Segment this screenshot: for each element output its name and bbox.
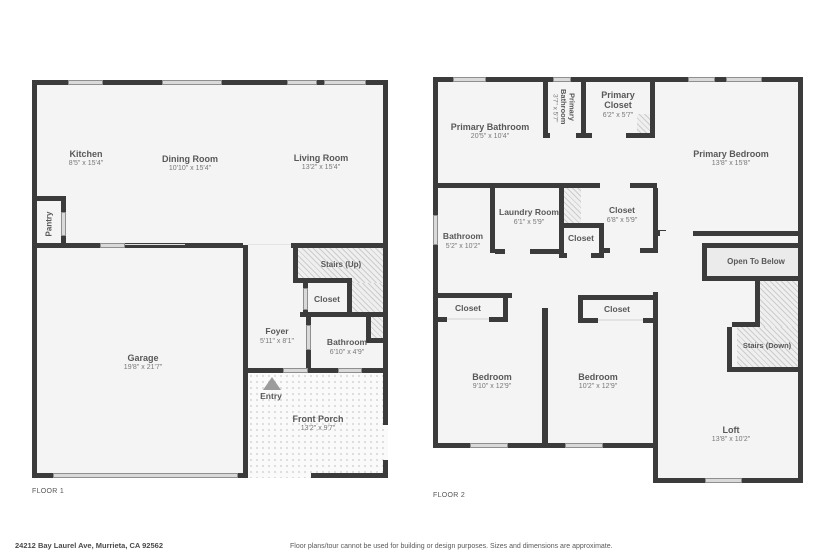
window-marker xyxy=(688,77,715,82)
wall xyxy=(300,312,388,317)
window-marker xyxy=(470,443,508,448)
wall xyxy=(383,80,388,373)
room-label-closet-bed1: Closet xyxy=(455,304,481,314)
door-threshold-line xyxy=(248,244,291,245)
room-label-dining-room: Dining Room 10'10" x 15'4" xyxy=(162,154,218,173)
window-marker xyxy=(306,325,311,350)
window-marker xyxy=(287,80,317,85)
window-marker xyxy=(68,80,103,85)
door-threshold-line xyxy=(125,244,185,245)
wall xyxy=(32,80,37,478)
wall xyxy=(248,368,388,373)
wall xyxy=(383,373,388,425)
stairs-down-area-upper xyxy=(760,281,798,327)
wall xyxy=(653,188,658,252)
room-label-bathroom-f2: Bathroom 5'2" x 10'2" xyxy=(443,232,483,251)
wall xyxy=(727,327,732,372)
room-label-open-to-below: Open To Below xyxy=(727,257,785,266)
window-marker xyxy=(283,368,308,373)
window-marker xyxy=(61,212,66,236)
wall xyxy=(291,243,388,248)
door-opening xyxy=(567,253,591,258)
disclaimer-text: Floor plans/tour cannot be used for buil… xyxy=(290,543,613,550)
wall xyxy=(293,278,352,283)
room-label-stairs-up: Stairs (Up) xyxy=(321,260,361,269)
wall xyxy=(559,223,604,228)
wall xyxy=(433,293,512,298)
room-label-stairs-down: Stairs (Down) xyxy=(743,342,791,351)
wall xyxy=(542,308,548,448)
wall xyxy=(578,318,598,323)
wall xyxy=(732,322,760,327)
window-marker xyxy=(705,478,742,483)
wall xyxy=(727,367,803,372)
room-label-laundry-room: Laundry Room 6'1" x 5'9" xyxy=(499,208,559,227)
wall xyxy=(433,77,438,448)
door-threshold-line xyxy=(598,319,643,321)
room-label-loft: Loft 13'8" x 10'2" xyxy=(712,425,750,444)
window-marker xyxy=(453,77,486,82)
window-marker xyxy=(324,80,366,85)
room-label-primary-bathroom-small: Primary Bathroom 3'7" x 5'7" xyxy=(550,80,576,136)
room-label-pantry: Pantry xyxy=(45,212,54,237)
wall xyxy=(311,473,388,478)
property-address: 24212 Bay Laurel Ave, Murrieta, CA 92562 xyxy=(15,541,163,550)
window-marker xyxy=(100,243,125,248)
room-label-primary-bedroom: Primary Bedroom 13'8" x 15'8" xyxy=(693,149,769,168)
shaft-hatch xyxy=(563,188,581,223)
wall xyxy=(578,295,657,300)
room-label-living-room: Living Room 13'2" x 15'4" xyxy=(294,153,349,172)
room-label-bedroom1: Bedroom 9'10" x 12'9" xyxy=(472,372,512,391)
door-threshold-line xyxy=(447,318,489,320)
window-marker xyxy=(53,473,238,478)
door-opening xyxy=(505,249,530,254)
room-label-entry: Entry xyxy=(260,392,282,402)
wall xyxy=(702,276,800,281)
room-label-kitchen: Kitchen 8'5" x 15'4" xyxy=(69,149,104,168)
wall xyxy=(489,317,508,322)
wall xyxy=(702,243,800,248)
entry-arrow-icon xyxy=(263,377,281,390)
door-opening xyxy=(600,183,630,188)
window-marker xyxy=(565,443,603,448)
window-marker xyxy=(162,80,222,85)
room-label-closet-right: Closet 6'8" x 5'9" xyxy=(607,206,638,225)
window-marker xyxy=(303,288,308,310)
room-label-garage: Garage 19'8" x 21'7" xyxy=(124,353,162,372)
room-label-bathroom-f1: Bathroom 6'10" x 4'9" xyxy=(327,338,367,357)
door-opening xyxy=(660,231,693,236)
floor-plan-canvas: Kitchen 8'5" x 15'4" Dining Room 10'10" … xyxy=(0,0,839,560)
window-marker xyxy=(338,368,362,373)
room-label-closet-f1: Closet xyxy=(314,295,340,305)
room-label-foyer: Foyer 5'11" x 8'1" xyxy=(260,327,294,346)
room-label-bedroom2: Bedroom 10'2" x 12'9" xyxy=(578,372,618,391)
wall xyxy=(643,318,657,323)
wall xyxy=(581,77,586,138)
wall xyxy=(650,77,655,138)
room-label-front-porch: Front Porch 13'2" x 9'7" xyxy=(293,414,344,433)
window-marker xyxy=(433,215,438,245)
wall xyxy=(693,231,803,236)
wall xyxy=(755,281,760,327)
wall xyxy=(243,245,248,478)
floor2-tag: FLOOR 2 xyxy=(433,492,465,499)
door-opening xyxy=(592,133,626,138)
door-opening xyxy=(610,248,640,253)
wall xyxy=(366,338,386,343)
floor1-tag: FLOOR 1 xyxy=(32,488,64,495)
door-opening xyxy=(490,253,495,273)
window-marker xyxy=(726,77,762,82)
wall xyxy=(543,77,548,138)
room-label-primary-bathroom: Primary Bathroom 20'5" x 10'4" xyxy=(451,122,530,141)
room-label-closet-bed2: Closet xyxy=(604,305,630,315)
room-label-closet-mid: Closet xyxy=(568,234,594,244)
room-label-primary-closet: Primary Closet 6'2" x 5'7" xyxy=(588,90,648,120)
wall xyxy=(433,317,447,322)
